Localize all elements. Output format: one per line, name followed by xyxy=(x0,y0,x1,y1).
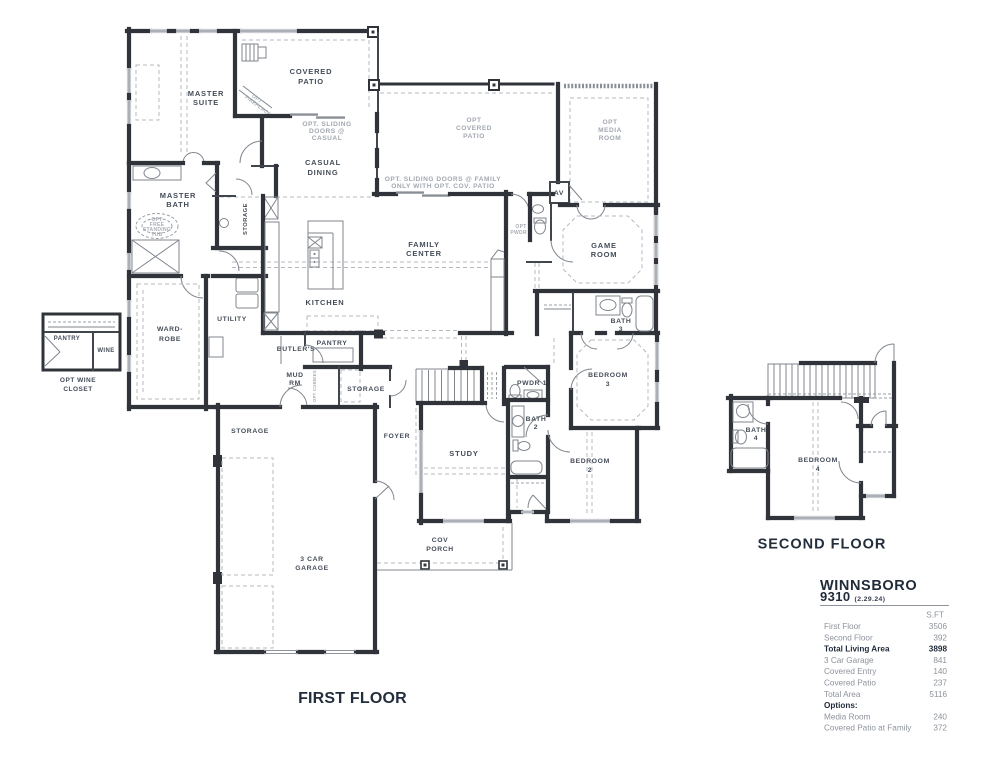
svg-text:372: 372 xyxy=(933,724,947,733)
svg-text:PANTRY: PANTRY xyxy=(317,340,348,347)
svg-text:3 CAR: 3 CAR xyxy=(300,556,323,563)
svg-text:240: 240 xyxy=(933,712,947,721)
svg-text:CENTER: CENTER xyxy=(406,249,442,258)
svg-text:STORAGE: STORAGE xyxy=(243,203,249,235)
svg-text:GARAGE: GARAGE xyxy=(295,565,328,572)
svg-text:841: 841 xyxy=(933,656,947,665)
svg-text:GAME: GAME xyxy=(591,241,617,250)
svg-text:BUTLER'S: BUTLER'S xyxy=(277,346,316,353)
svg-text:SECOND FLOOR: SECOND FLOOR xyxy=(758,537,887,553)
svg-text:DINING: DINING xyxy=(307,168,338,177)
svg-text:STUDY: STUDY xyxy=(449,449,478,458)
svg-text:CLOSET: CLOSET xyxy=(63,386,92,393)
svg-text:DOORS @: DOORS @ xyxy=(309,128,345,135)
svg-text:BEDROOM: BEDROOM xyxy=(588,372,628,379)
svg-text:392: 392 xyxy=(933,633,947,642)
svg-text:STORAGE: STORAGE xyxy=(231,428,269,435)
svg-text:TUB: TUB xyxy=(151,232,162,238)
svg-text:4: 4 xyxy=(754,435,758,442)
svg-text:FIRST FLOOR: FIRST FLOOR xyxy=(298,690,407,707)
svg-text:COVERED: COVERED xyxy=(290,67,333,76)
svg-text:2: 2 xyxy=(534,424,538,431)
svg-text:OPT WINE: OPT WINE xyxy=(60,377,96,384)
svg-text:First Floor: First Floor xyxy=(824,622,861,631)
svg-text:PANTRY: PANTRY xyxy=(54,336,80,342)
svg-text:Media Room: Media Room xyxy=(824,712,871,721)
svg-text:OPT: OPT xyxy=(602,119,617,126)
svg-text:BEDROOM: BEDROOM xyxy=(798,457,838,464)
svg-text:S.FT: S.FT xyxy=(926,611,944,620)
svg-text:AV: AV xyxy=(554,190,564,197)
svg-text:3 Car Garage: 3 Car Garage xyxy=(824,656,874,665)
svg-text:COVERED: COVERED xyxy=(456,125,492,132)
svg-text:BATH: BATH xyxy=(746,427,767,434)
svg-text:Total Area: Total Area xyxy=(824,690,861,699)
svg-text:WARD-: WARD- xyxy=(157,326,183,333)
svg-text:140: 140 xyxy=(933,667,947,676)
svg-text:Covered Patio: Covered Patio xyxy=(824,679,876,688)
svg-text:2: 2 xyxy=(588,467,592,474)
svg-text:PATIO: PATIO xyxy=(463,133,485,140)
svg-text:3: 3 xyxy=(619,326,623,333)
svg-text:BATH: BATH xyxy=(166,200,189,209)
svg-text:3898: 3898 xyxy=(929,645,948,654)
svg-text:3: 3 xyxy=(606,381,610,388)
svg-text:CASUAL: CASUAL xyxy=(305,158,341,167)
svg-text:WINE: WINE xyxy=(97,348,114,354)
svg-text:PWDR 1: PWDR 1 xyxy=(517,380,547,387)
svg-text:MEDIA: MEDIA xyxy=(598,127,622,134)
svg-text:BATH: BATH xyxy=(611,318,632,325)
svg-text:COV: COV xyxy=(432,537,449,544)
svg-text:PORCH: PORCH xyxy=(426,546,454,553)
svg-text:STORAGE: STORAGE xyxy=(347,386,385,393)
svg-text:MUD: MUD xyxy=(286,372,303,379)
svg-text:ROOM: ROOM xyxy=(599,135,622,142)
svg-text:ROOM: ROOM xyxy=(591,250,618,259)
svg-text:MASTER: MASTER xyxy=(160,191,196,200)
svg-text:ROBE: ROBE xyxy=(159,336,181,343)
svg-text:OPT: OPT xyxy=(466,117,481,124)
svg-text:Second Floor: Second Floor xyxy=(824,633,873,642)
svg-text:Covered Entry: Covered Entry xyxy=(824,667,877,676)
svg-text:SUITE: SUITE xyxy=(193,98,219,107)
svg-text:ONLY WITH OPT. COV. PATIO: ONLY WITH OPT. COV. PATIO xyxy=(391,183,495,190)
svg-text:MASTER: MASTER xyxy=(188,89,224,98)
svg-text:FAMILY: FAMILY xyxy=(408,240,440,249)
svg-text:BEDROOM: BEDROOM xyxy=(570,458,610,465)
svg-text:FOYER: FOYER xyxy=(384,433,410,440)
svg-text:KITCHEN: KITCHEN xyxy=(306,298,345,307)
svg-text:PATIO: PATIO xyxy=(298,77,324,86)
svg-text:5116: 5116 xyxy=(929,690,947,699)
svg-text:Total Living Area: Total Living Area xyxy=(824,645,890,654)
svg-text:OPT. SLIDING: OPT. SLIDING xyxy=(302,121,351,128)
svg-text:BATH: BATH xyxy=(526,416,547,423)
svg-text:237: 237 xyxy=(933,679,947,688)
svg-text:Options:: Options: xyxy=(824,701,858,710)
svg-text:3506: 3506 xyxy=(929,622,948,631)
svg-text:OPT. SLIDING DOORS @ FAMILY: OPT. SLIDING DOORS @ FAMILY xyxy=(385,176,502,183)
svg-text:CASUAL: CASUAL xyxy=(312,135,342,142)
svg-text:4: 4 xyxy=(816,466,820,473)
svg-text:Covered Patio at Family: Covered Patio at Family xyxy=(824,724,912,733)
svg-text:UTILITY: UTILITY xyxy=(217,316,247,323)
svg-text:OPT CUBBIES: OPT CUBBIES xyxy=(312,370,317,402)
